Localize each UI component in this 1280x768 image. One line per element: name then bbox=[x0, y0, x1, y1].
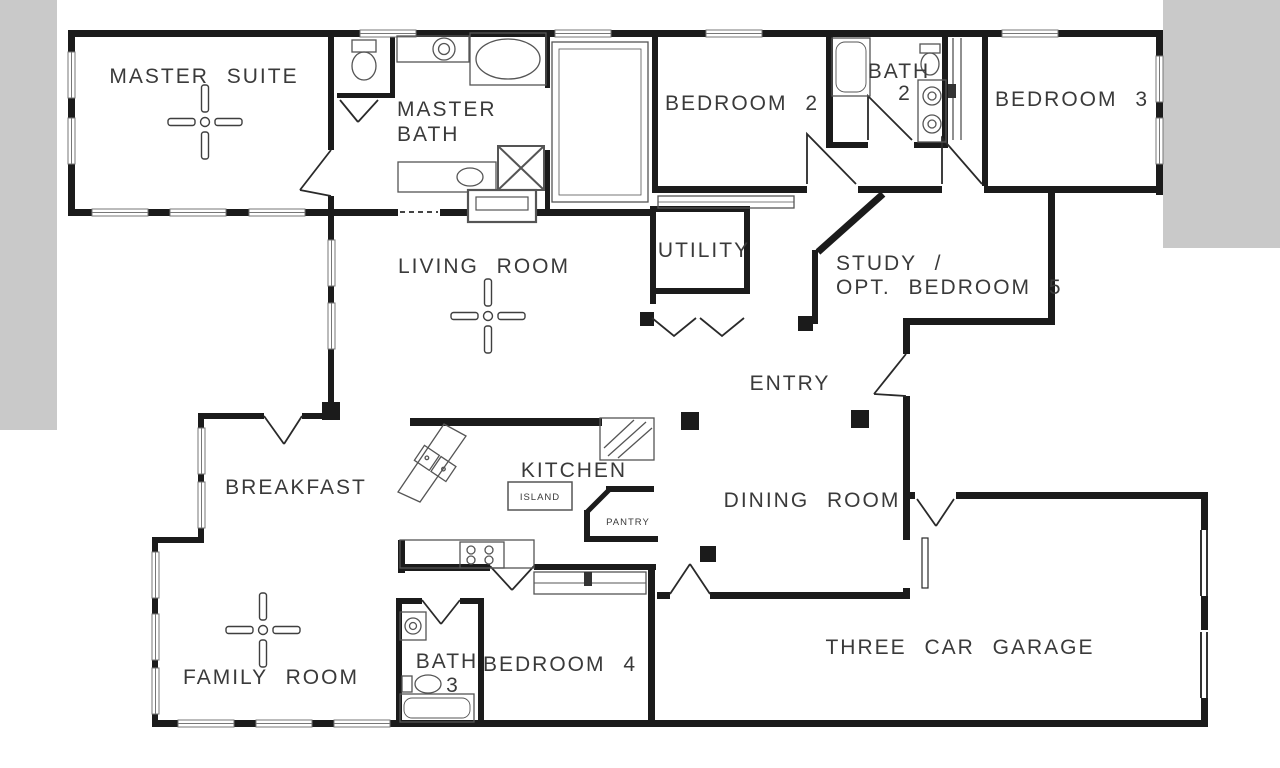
room-label-entry: ENTRY bbox=[750, 372, 831, 395]
floor-plan-svg: MASTER SUITE MASTER BATH BEDROOM 2 BATH … bbox=[0, 0, 1280, 768]
room-label-study-1: STUDY / bbox=[836, 252, 942, 275]
room-label-study-2: OPT. BEDROOM 5 bbox=[836, 276, 1063, 299]
room-label-bedroom-4: BEDROOM 4 bbox=[483, 653, 637, 676]
label-island: ISLAND bbox=[520, 492, 560, 503]
room-label-garage: THREE CAR GARAGE bbox=[825, 636, 1094, 659]
room-label-bedroom-2: BEDROOM 2 bbox=[665, 92, 819, 115]
floor-plan-page: MASTER SUITE MASTER BATH BEDROOM 2 BATH … bbox=[0, 0, 1280, 768]
room-label-bath-2-word: BATH bbox=[868, 60, 930, 83]
room-label-bath-2-num: 2 bbox=[898, 82, 912, 105]
room-label-master-suite: MASTER SUITE bbox=[109, 65, 298, 88]
room-label-master-bath-1: MASTER bbox=[397, 98, 497, 121]
room-label-dining-room: DINING ROOM bbox=[724, 489, 901, 512]
room-label-bedroom-3: BEDROOM 3 bbox=[995, 88, 1149, 111]
room-label-master-bath-2: BATH bbox=[397, 123, 459, 146]
room-label-bath-3-num: 3 bbox=[446, 674, 460, 697]
room-label-kitchen: KITCHEN bbox=[521, 459, 627, 482]
right-matte-band bbox=[1163, 0, 1280, 248]
room-label-bath-3-word: BATH bbox=[416, 650, 478, 673]
fireplace-icon bbox=[468, 190, 536, 222]
room-label-living-room: LIVING ROOM bbox=[398, 255, 570, 278]
room-label-breakfast: BREAKFAST bbox=[225, 476, 367, 499]
label-pantry: PANTRY bbox=[606, 517, 650, 528]
room-label-family-room: FAMILY ROOM bbox=[183, 666, 359, 689]
room-label-utility: UTILITY bbox=[658, 239, 750, 262]
left-matte-band bbox=[0, 0, 57, 430]
